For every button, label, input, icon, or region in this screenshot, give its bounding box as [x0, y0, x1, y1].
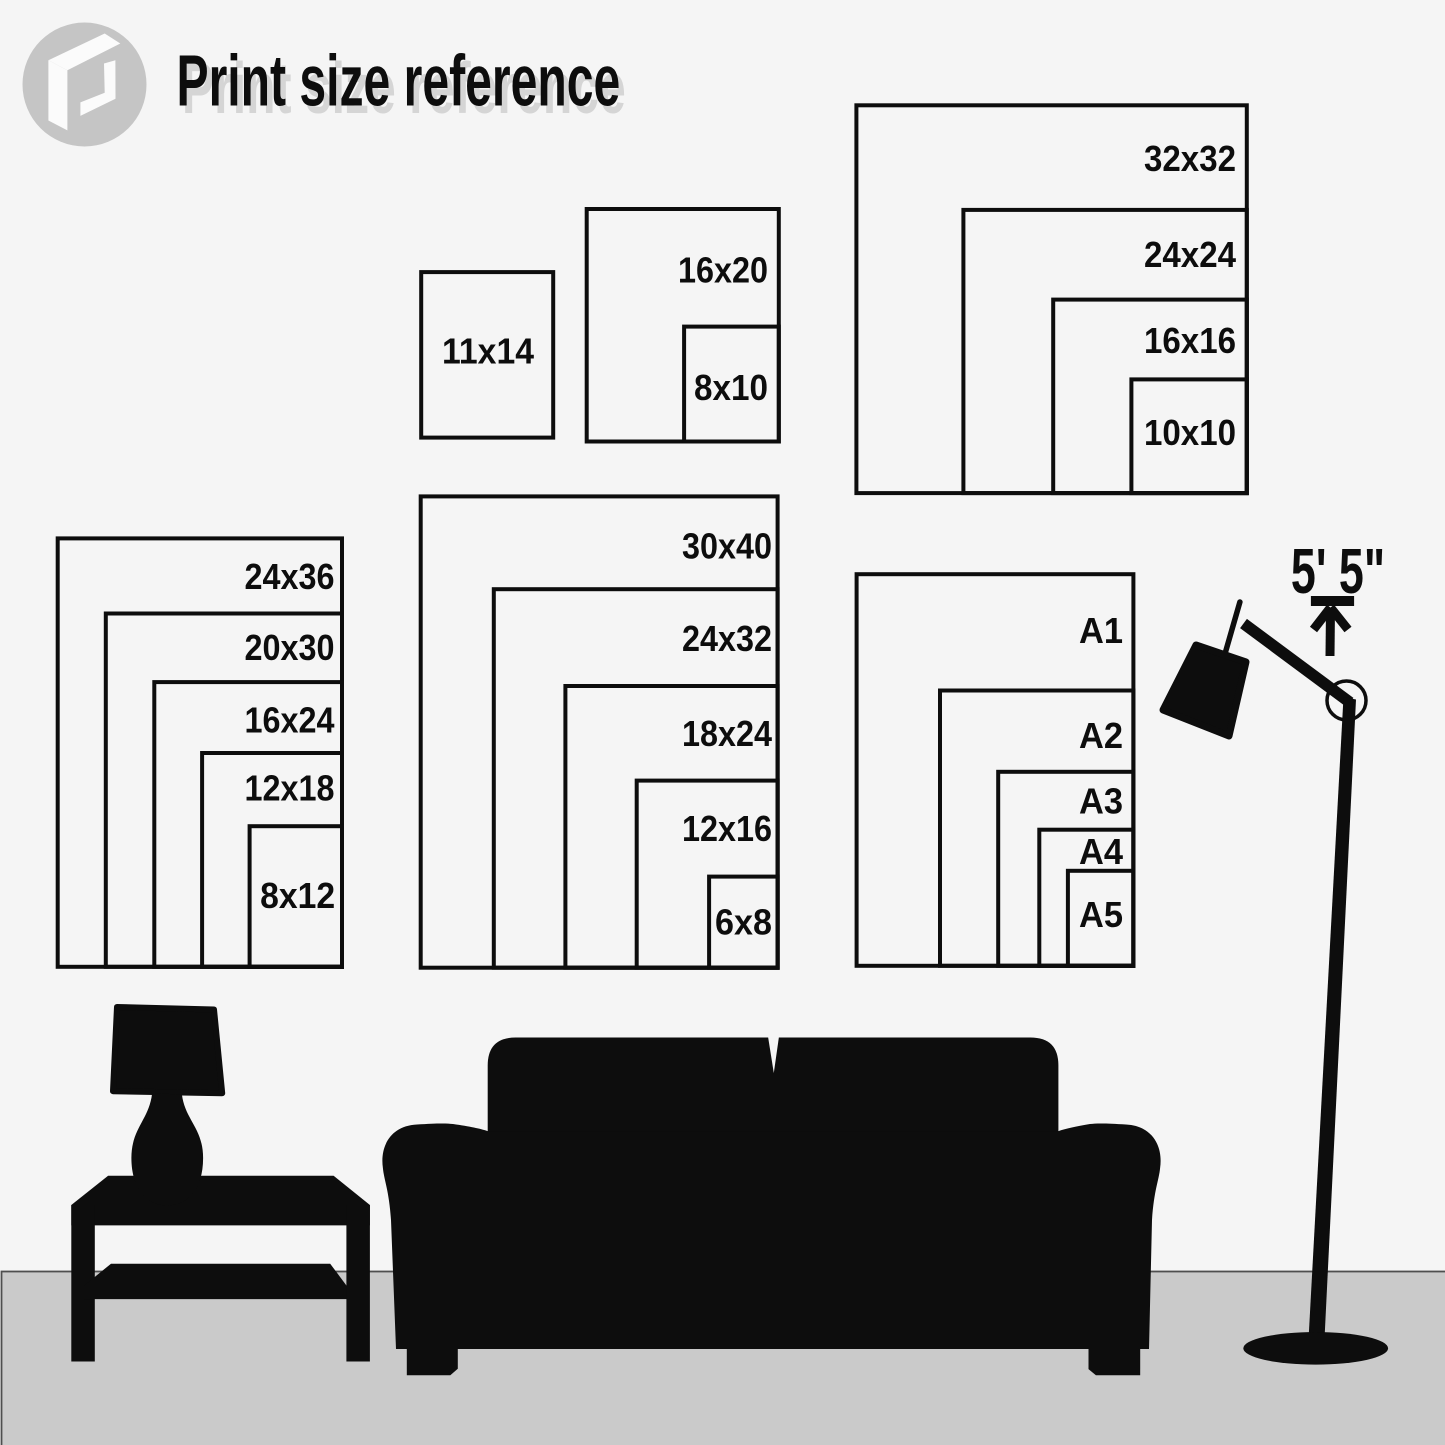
svg-text:6x8: 6x8	[715, 902, 772, 942]
svg-text:24x24: 24x24	[1144, 236, 1237, 276]
svg-text:A2: A2	[1079, 716, 1123, 756]
svg-text:A1: A1	[1079, 611, 1123, 651]
svg-text:16x20: 16x20	[678, 251, 768, 291]
svg-text:16x16: 16x16	[1144, 322, 1236, 362]
svg-text:Print size reference: Print size reference	[177, 41, 621, 121]
svg-text:30x40: 30x40	[682, 527, 772, 567]
svg-text:24x36: 24x36	[245, 558, 335, 598]
svg-text:12x18: 12x18	[245, 769, 335, 809]
svg-text:10x10: 10x10	[1144, 414, 1236, 454]
svg-text:12x16: 12x16	[682, 809, 772, 849]
svg-text:A3: A3	[1079, 782, 1123, 822]
svg-text:32x32: 32x32	[1144, 140, 1236, 180]
svg-text:8x10: 8x10	[694, 369, 768, 408]
svg-text:16x24: 16x24	[245, 701, 335, 741]
svg-text:18x24: 18x24	[682, 714, 772, 754]
svg-text:20x30: 20x30	[245, 629, 335, 669]
svg-text:A4: A4	[1079, 832, 1123, 872]
svg-text:A5: A5	[1079, 895, 1123, 935]
svg-text:11x14: 11x14	[442, 332, 535, 372]
svg-text:24x32: 24x32	[682, 620, 772, 660]
svg-text:8x12: 8x12	[260, 876, 335, 916]
